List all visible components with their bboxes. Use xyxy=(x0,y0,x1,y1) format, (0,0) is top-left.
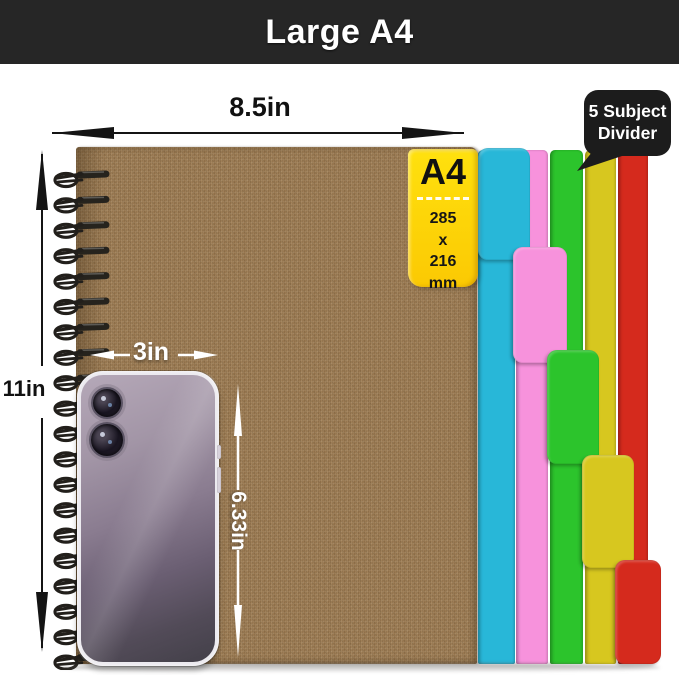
divider-strip-red xyxy=(618,150,648,664)
height-dimension-arrow-icon xyxy=(20,142,64,662)
height-dimension-label: 11in xyxy=(2,376,46,402)
size-label-line3: 216 xyxy=(430,251,457,273)
lens-glint-icon xyxy=(108,403,112,407)
phone-height-arrow-icon xyxy=(225,378,251,663)
callout-line1: 5 Subject xyxy=(589,101,667,123)
divider-tab-cyan xyxy=(478,148,530,260)
callout-bubble: 5 Subject Divider xyxy=(584,90,671,156)
lens-glint-icon xyxy=(101,396,106,401)
size-label-line2: x xyxy=(439,230,448,252)
product-infographic: Large A4 8.5in 11in A4 285 x 216 mm 5 Su… xyxy=(0,0,679,675)
size-label-title: A4 xyxy=(420,154,466,190)
divider-tab-green xyxy=(547,350,599,464)
lens-glint-icon xyxy=(108,440,112,444)
camera-lens-icon xyxy=(89,422,125,458)
callout-line2: Divider xyxy=(598,123,657,145)
camera-lens-icon xyxy=(91,387,123,419)
divider-strip-yellow xyxy=(585,150,616,664)
phone-side-button xyxy=(217,467,221,493)
divider-tab-red xyxy=(615,560,661,664)
phone-width-arrows-icon xyxy=(84,344,224,368)
phone xyxy=(77,371,219,666)
phone-side-button xyxy=(217,445,221,459)
divider-tab-yellow xyxy=(582,455,634,568)
divider-strip-green xyxy=(550,150,583,664)
size-label-divider-line xyxy=(417,197,469,200)
width-dimension-label: 8.5in xyxy=(160,92,360,123)
divider-tab-pink xyxy=(513,247,567,363)
size-label: A4 285 x 216 mm xyxy=(408,149,478,287)
size-label-line1: 285 xyxy=(430,208,457,230)
page-title: Large A4 xyxy=(265,13,413,52)
divider-strip-pink xyxy=(516,150,548,664)
size-label-line4: mm xyxy=(429,273,457,295)
divider-strip-cyan xyxy=(478,150,515,664)
lens-glint-icon xyxy=(100,432,105,437)
header-bar: Large A4 xyxy=(0,0,679,64)
